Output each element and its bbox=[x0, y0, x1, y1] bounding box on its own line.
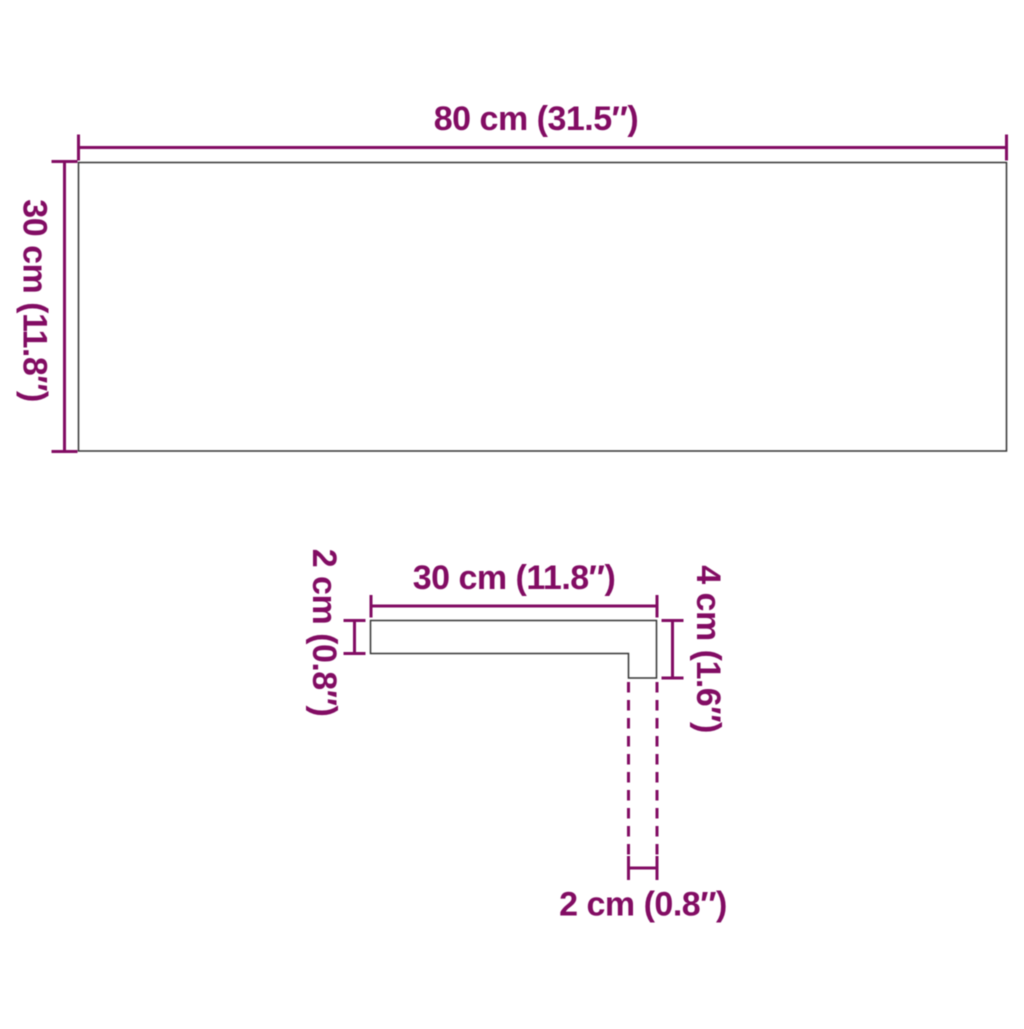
svg-text:80 cm (31.5″): 80 cm (31.5″) bbox=[434, 100, 638, 138]
svg-text:4 cm (1.6″): 4 cm (1.6″) bbox=[689, 565, 727, 733]
svg-text:2 cm (0.8″): 2 cm (0.8″) bbox=[559, 886, 727, 924]
svg-text:30 cm (11.8″): 30 cm (11.8″) bbox=[16, 199, 54, 402]
svg-text:2 cm (0.8″): 2 cm (0.8″) bbox=[305, 549, 343, 717]
svg-text:30 cm (11.8″): 30 cm (11.8″) bbox=[413, 559, 616, 597]
